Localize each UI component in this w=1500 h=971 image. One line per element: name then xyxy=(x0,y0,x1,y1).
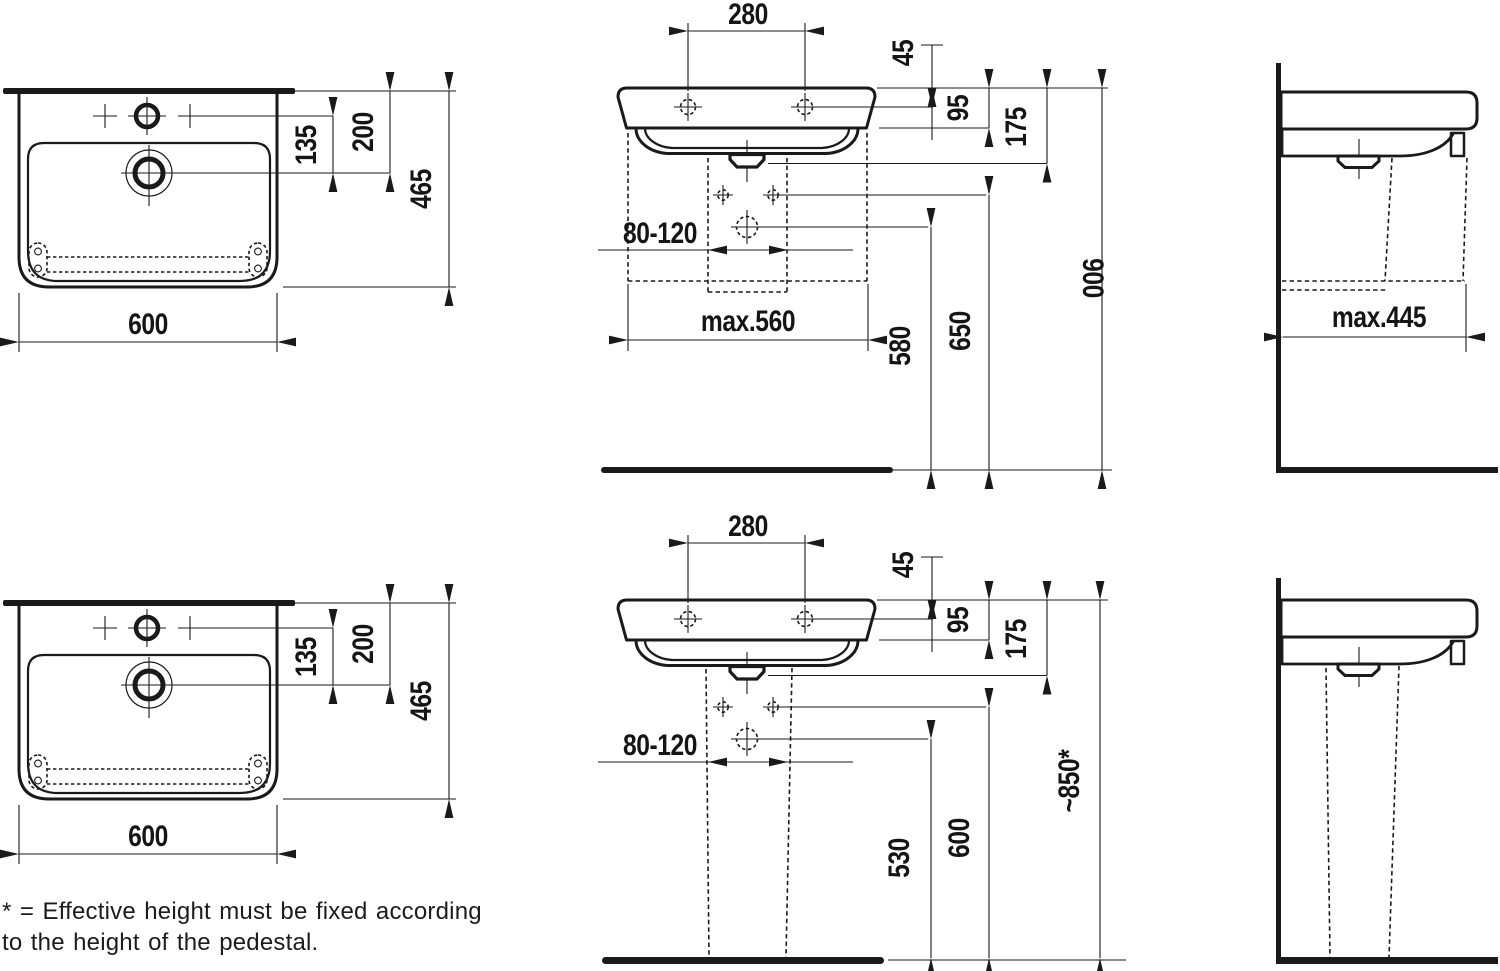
dim-label-floor-to-rim: 900 xyxy=(1076,258,1110,298)
pedestal-dashed xyxy=(706,668,792,957)
view-side-pedestal xyxy=(1276,578,1498,964)
footnote: * = Effective height must be fixed accor… xyxy=(2,896,562,958)
dim-label-rim-to-fixing: 45 xyxy=(886,552,920,579)
drawing-canvas: 600 465 200 135 280 45 95 175 80 xyxy=(0,0,1500,971)
dim-label-basin-height: 175 xyxy=(999,107,1033,147)
dim-label-drain-offset-range: 80-120 xyxy=(623,728,697,762)
floor-line xyxy=(1276,957,1498,964)
view-front-pedestal: 280 45 95 175 80-120 530 600 ~850* xyxy=(598,509,1126,964)
dim-label-floor-to-drain: 580 xyxy=(883,326,917,366)
footnote-line-2: to the height of the pedestal. xyxy=(2,927,562,958)
side-geometry xyxy=(1281,92,1477,179)
side-geometry xyxy=(1281,600,1477,687)
dim-label-plan-depth: 465 xyxy=(404,681,438,721)
dim-label-tap-spacing: 280 xyxy=(728,509,768,543)
pedestal-dashed xyxy=(1326,666,1399,957)
floor-line xyxy=(601,467,893,473)
dim-label-fixing-to-underside: 95 xyxy=(941,607,975,634)
dim-label-plan-width: 600 xyxy=(128,819,168,853)
dim-label-floor-to-fixing: 650 xyxy=(943,311,977,351)
dim-label-floor-to-drain: 530 xyxy=(882,838,916,878)
view-side-wallhung: max.445 xyxy=(1276,63,1498,473)
dim-label-plan-tap-to-drain: 135 xyxy=(289,125,323,165)
dim-label-rim-to-fixing: 45 xyxy=(886,40,920,67)
dim-label-fixing-to-underside: 95 xyxy=(941,95,975,122)
dim-label-max-depth: max.445 xyxy=(1332,300,1426,334)
view-plan-pedestal: 600 465 200 135 xyxy=(3,600,456,864)
view-plan-wallhung: 600 465 200 135 xyxy=(3,88,456,352)
dim-label-floor-to-rim: ~850* xyxy=(1052,749,1086,813)
dim-label-plan-wall-to-drain: 200 xyxy=(346,624,380,664)
floor-line xyxy=(602,957,884,964)
plan-geometry xyxy=(3,88,456,352)
dim-label-drain-offset-range: 80-120 xyxy=(623,216,697,250)
dim-label-plan-width: 600 xyxy=(128,307,168,341)
dim-label-floor-to-fixing: 600 xyxy=(942,818,976,858)
dim-label-plan-wall-to-drain: 200 xyxy=(346,112,380,152)
dim-label-tap-spacing: 280 xyxy=(728,0,768,31)
dim-label-plan-tap-to-drain: 135 xyxy=(289,637,323,677)
footnote-line-1: * = Effective height must be fixed accor… xyxy=(2,896,562,927)
technical-drawing-sheet: 600 465 200 135 280 45 95 175 80 xyxy=(0,0,1500,971)
plan-geometry xyxy=(3,600,456,864)
view-front-wallhung: 280 45 95 175 80-120 max.560 580 650 900 xyxy=(598,0,1112,473)
trap-zone-dashed xyxy=(1282,158,1467,290)
dim-label-plan-depth: 465 xyxy=(404,169,438,209)
dim-label-max-width: max.560 xyxy=(701,304,795,338)
dim-label-basin-height: 175 xyxy=(999,619,1033,659)
floor-line xyxy=(1276,467,1498,473)
